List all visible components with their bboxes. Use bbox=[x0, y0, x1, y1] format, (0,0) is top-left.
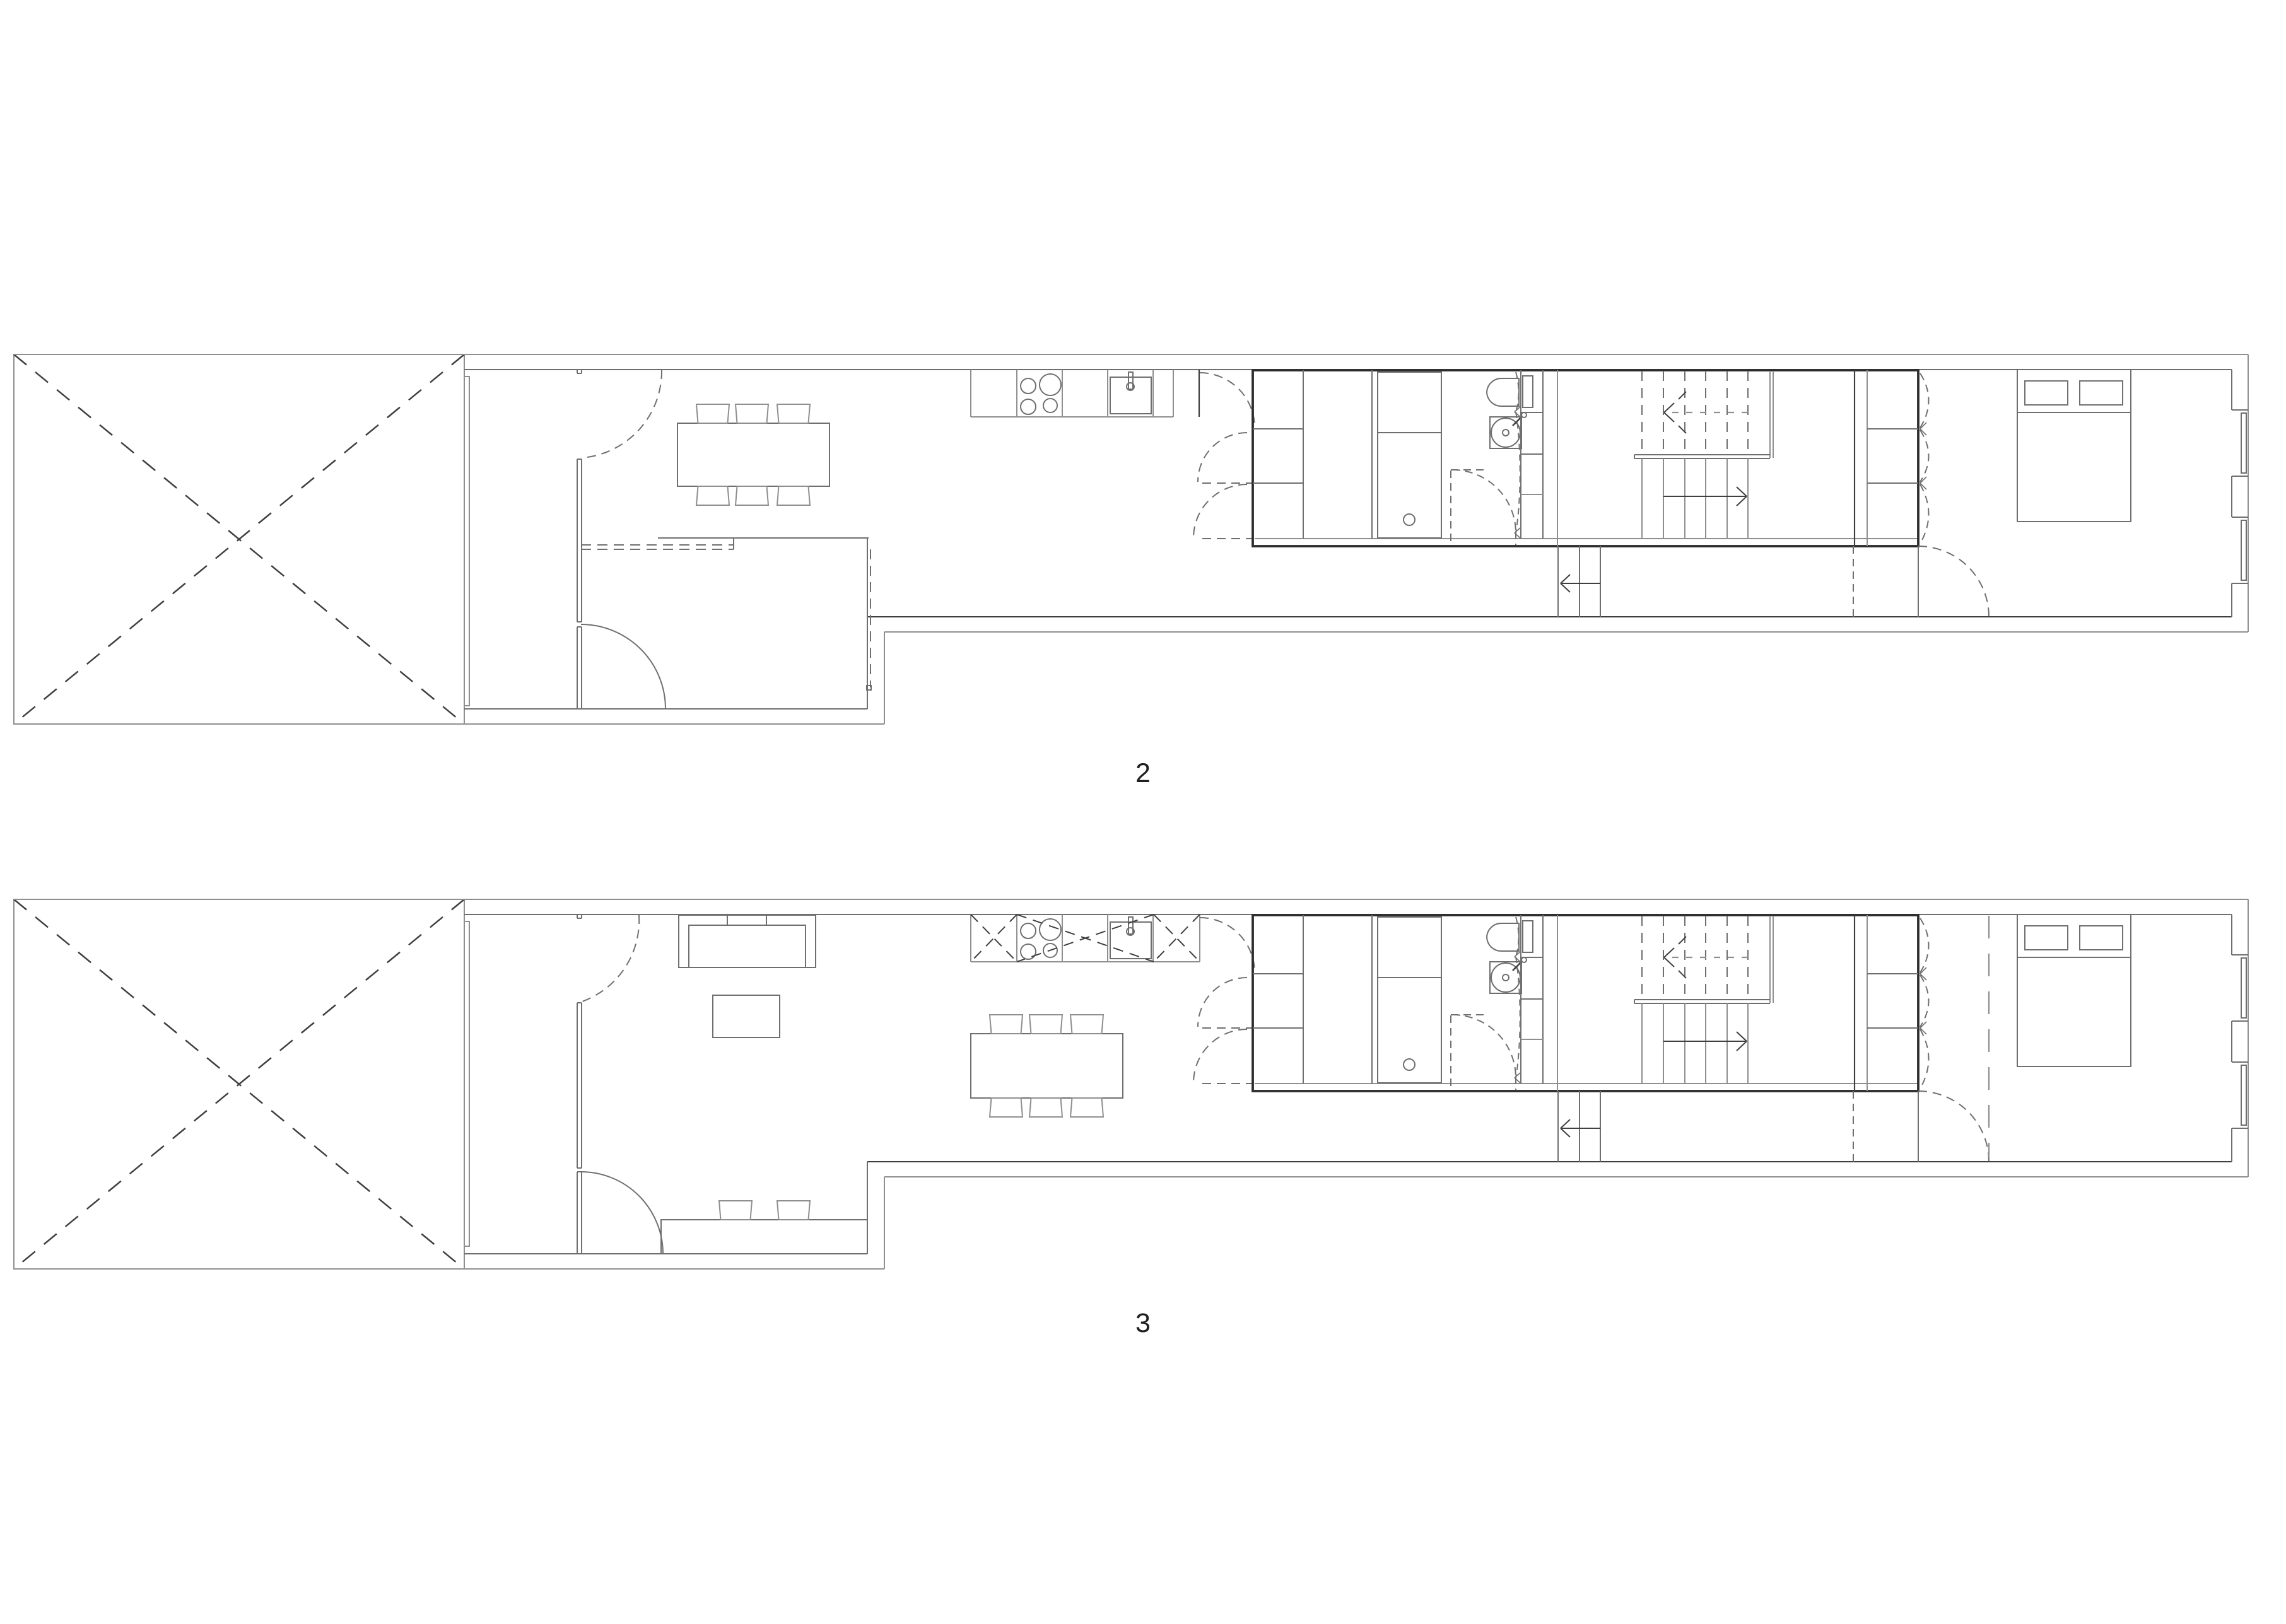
svg-text:2: 2 bbox=[1135, 758, 1151, 788]
svg-text:3: 3 bbox=[1135, 1308, 1151, 1338]
